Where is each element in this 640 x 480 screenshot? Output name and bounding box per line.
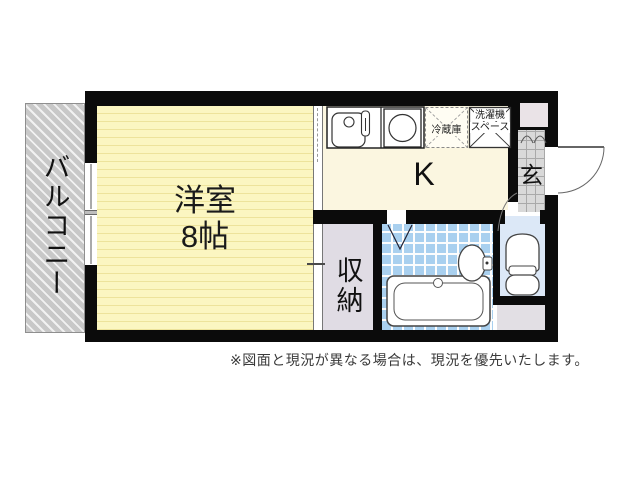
closet-door-partition xyxy=(313,224,323,330)
front-door-arc xyxy=(558,147,604,193)
closet-door-tick xyxy=(307,263,325,265)
wall-top xyxy=(85,91,558,106)
floor-plan: バルコニー 洋室 8帖 K 冷蔵庫 洗濯機 スペース 玄 収納 ※図面と現況が異… xyxy=(0,0,640,480)
window-mullion xyxy=(85,210,97,215)
wall-bath-toilet xyxy=(493,210,500,305)
pipe-space-area xyxy=(497,305,545,330)
disclaimer-text: ※図面と現況が異なる場合は、現況を優先いたします。 xyxy=(230,350,589,370)
kitchen-label: K xyxy=(404,156,444,193)
main-room-name: 洋室 xyxy=(145,183,265,219)
closet-label: 収納 xyxy=(329,244,367,328)
balcony-label: バルコニー xyxy=(25,140,85,310)
main-room-label: 洋室 8帖 xyxy=(145,183,265,255)
bathroom-area xyxy=(382,224,493,330)
partition-dashed-line xyxy=(317,108,319,162)
wall-toilet-bottom xyxy=(493,296,558,305)
refrigerator-label: 冷蔵庫 xyxy=(425,121,468,136)
main-room-size: 8帖 xyxy=(145,219,265,255)
entrance-label: 玄 xyxy=(517,156,546,190)
wall-bottom xyxy=(85,330,558,342)
front-door-opening xyxy=(545,147,558,195)
wall-toilet-top xyxy=(540,210,558,224)
washer-label-line2: スペース xyxy=(470,122,511,133)
toilet-room-area xyxy=(500,216,545,296)
washer-label: 洗濯機 スペース xyxy=(466,110,514,134)
wall-mid-right xyxy=(406,210,505,224)
wall-closet-bath xyxy=(373,210,382,330)
washer-label-line1: 洗濯機 xyxy=(474,110,506,121)
shoe-cabinet xyxy=(520,103,548,127)
